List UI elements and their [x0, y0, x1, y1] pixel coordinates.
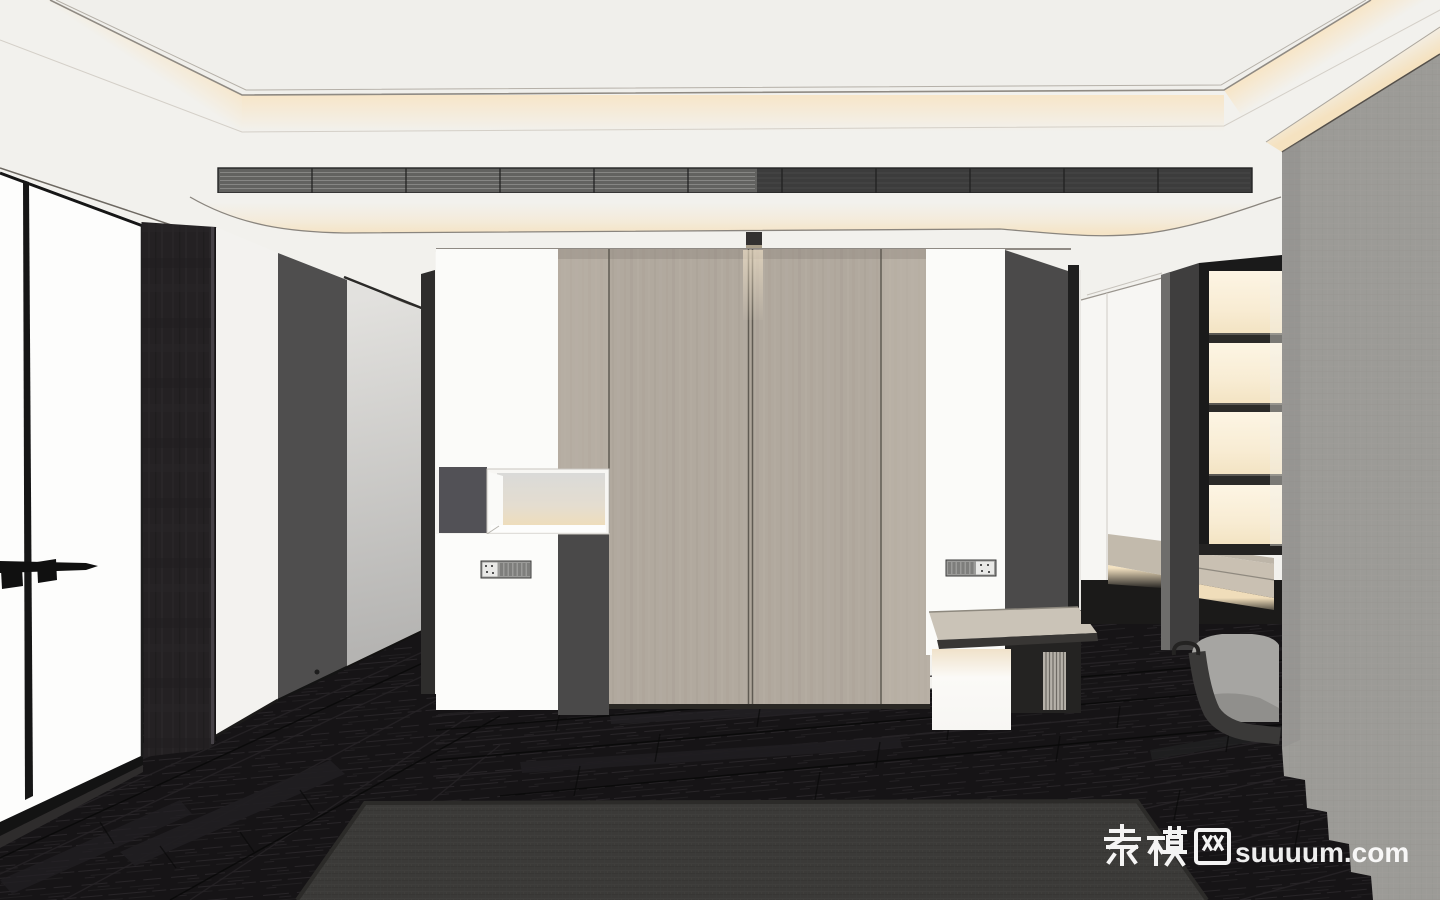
svg-text:suuuum.com: suuuum.com: [1235, 837, 1409, 868]
